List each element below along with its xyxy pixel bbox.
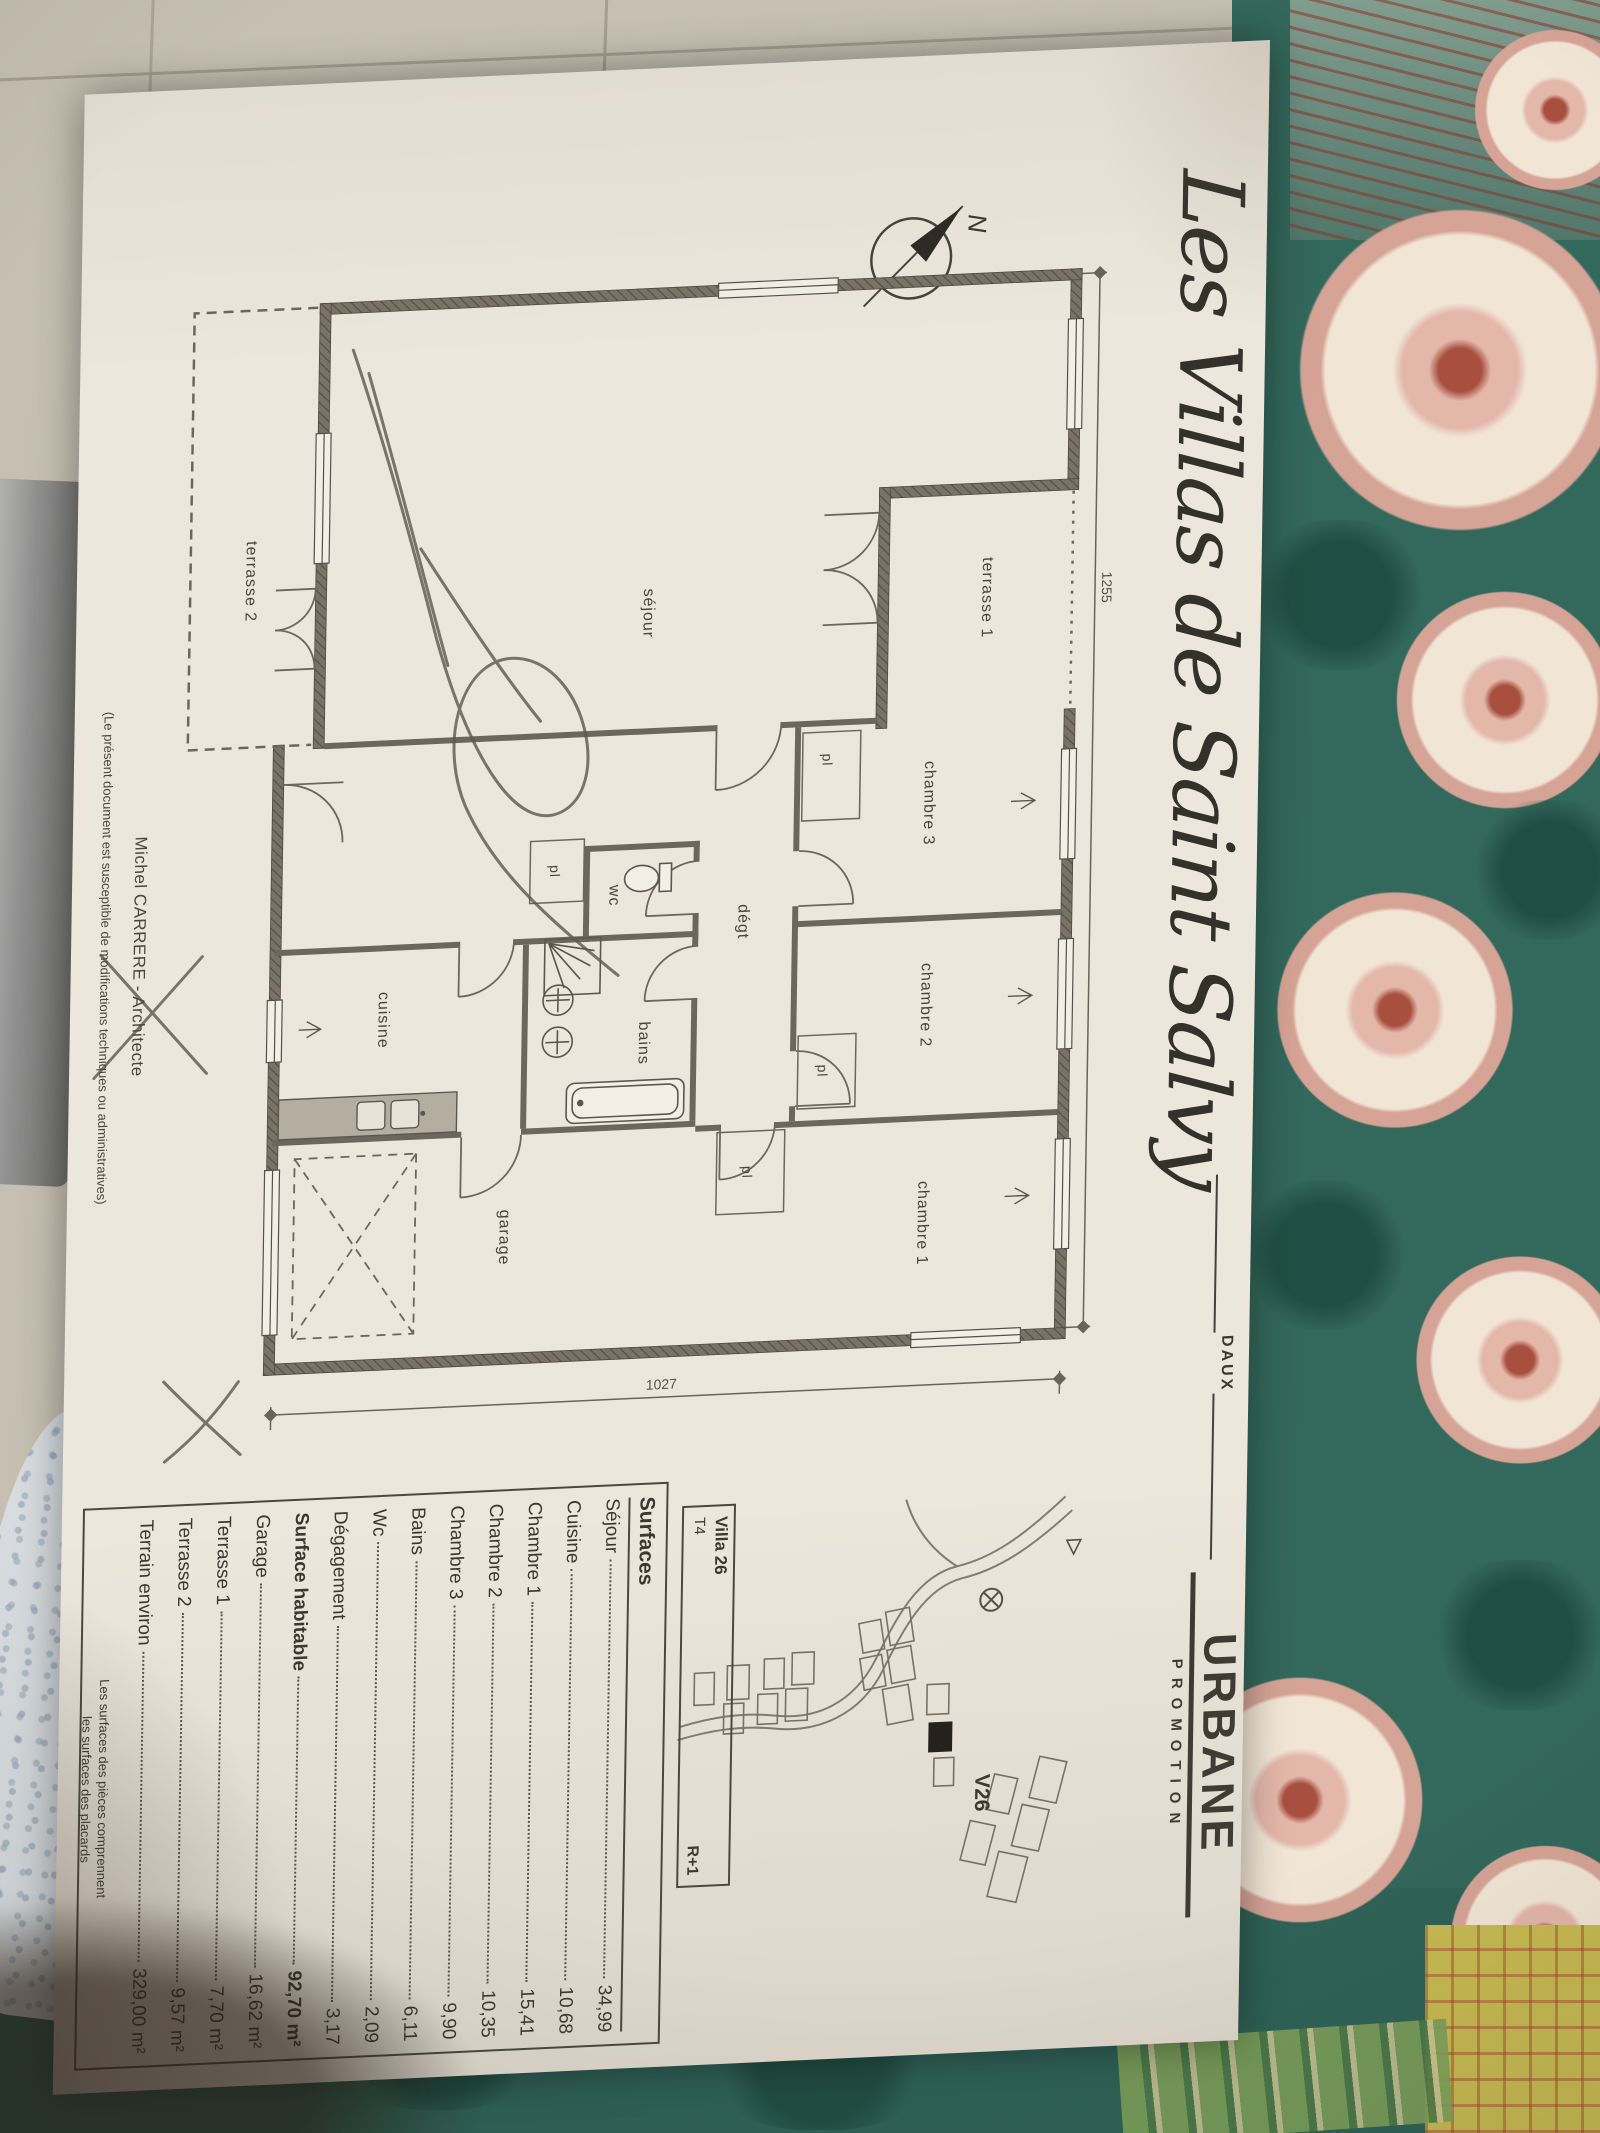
garage-door-swing bbox=[292, 1154, 416, 1340]
bathtub-icon bbox=[566, 1078, 684, 1123]
fabric-leaf bbox=[1470, 800, 1600, 940]
room-label-degt: dégt bbox=[734, 904, 752, 940]
room-label-sejour: séjour bbox=[639, 588, 657, 638]
tile-grout-line bbox=[603, 0, 609, 74]
map-arrow-icon bbox=[1067, 1540, 1081, 1555]
brand-name: URBANE bbox=[1192, 1570, 1245, 1917]
page-title: Les Villas de Saint Salvy bbox=[1146, 168, 1261, 1174]
toilet-icon bbox=[624, 863, 671, 893]
credits: Michel CARRERE - Architecte (Le présent … bbox=[93, 636, 154, 1278]
closet-label: pl bbox=[819, 753, 835, 767]
surfaces-heading: Surfaces bbox=[620, 1496, 658, 2031]
room-label-chambre2: chambre 2 bbox=[916, 963, 934, 1048]
tile-grout-line bbox=[148, 0, 155, 104]
room-label-terrasse1: terrasse 1 bbox=[978, 557, 996, 639]
kitchen-sink-icon bbox=[278, 1092, 457, 1140]
room-label-garage: garage bbox=[495, 1209, 513, 1266]
villa-info-box: Villa 26 T4 R+1 bbox=[676, 1504, 736, 1888]
north-compass: N bbox=[864, 205, 993, 307]
closet-label: pl bbox=[739, 1166, 755, 1180]
pen-scribble bbox=[88, 337, 629, 1465]
map-north-icon bbox=[980, 1588, 1002, 1611]
closet-label: pl bbox=[547, 865, 563, 879]
surfaces-table: Surfaces Séjour34,99 Cuisine10,68 Chambr… bbox=[74, 1482, 669, 2071]
room-label-cuisine: cuisine bbox=[374, 991, 392, 1049]
location-label: DAUX bbox=[1217, 1335, 1236, 1393]
villa-floor: R+1 bbox=[682, 1845, 700, 1876]
dimension-depth-label: 1027 bbox=[646, 1375, 677, 1392]
header-rule bbox=[1210, 1394, 1215, 1560]
room-label-bains: bains bbox=[635, 1021, 653, 1065]
lot-label: V26 bbox=[970, 1773, 994, 1811]
fabric-leaf bbox=[1430, 1560, 1600, 1710]
room-label-chambre1: chambre 1 bbox=[913, 1181, 931, 1266]
floor-plan: N 1255 1027 bbox=[82, 186, 1138, 1494]
brand-subtitle: PROMOTION bbox=[1164, 1573, 1186, 1919]
brochure-paper: Les Villas de Saint Salvy DAUX URBANE PR… bbox=[53, 40, 1270, 2095]
dimension-width-label: 1255 bbox=[1099, 571, 1115, 603]
north-label: N bbox=[962, 213, 992, 233]
header-rule bbox=[1213, 1175, 1218, 1333]
fabric-leaf bbox=[1250, 520, 1430, 670]
room-label-wc: wc bbox=[605, 884, 622, 907]
lot-highlight bbox=[928, 1721, 952, 1752]
brand-logo: URBANE PROMOTION bbox=[1164, 1570, 1245, 1918]
room-label-terrasse2: terrasse 2 bbox=[242, 541, 260, 623]
closet-label: pl bbox=[814, 1064, 830, 1078]
closets bbox=[525, 730, 861, 1223]
villa-type: T4 bbox=[691, 1517, 708, 1535]
photo-scene: Les Villas de Saint Salvy DAUX URBANE PR… bbox=[0, 0, 1600, 2133]
villa-name: Villa 26 bbox=[710, 1516, 731, 1575]
fabric-flower bbox=[1270, 885, 1520, 1135]
fabric-leaf bbox=[1240, 1180, 1410, 1330]
surfaces-footnote: Les surfaces des pièces comprennent les … bbox=[73, 1521, 115, 2057]
room-label-chambre3: chambre 3 bbox=[920, 761, 938, 846]
